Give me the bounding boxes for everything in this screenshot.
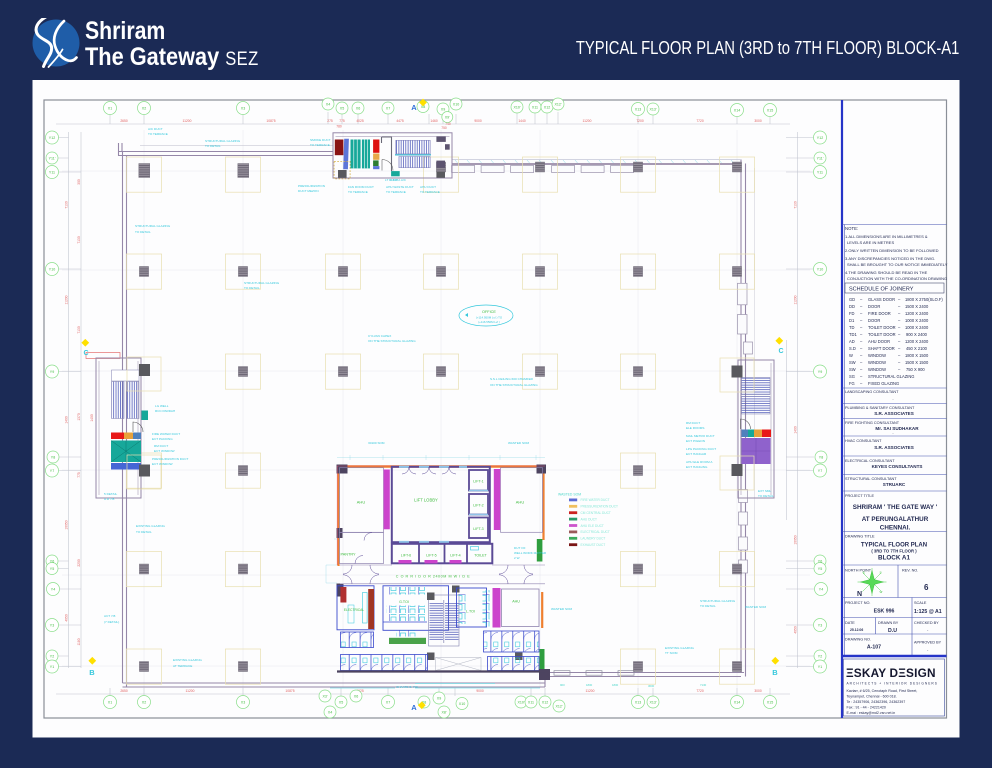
- svg-text:TOILET DOOR: TOILET DOOR: [868, 325, 896, 330]
- svg-text:SHALL BE BROUGHT TO OUR NOTICE: SHALL BE BROUGHT TO OUR NOTICE IMMEDIATE…: [847, 262, 948, 267]
- svg-text:Y2: Y2: [50, 655, 54, 659]
- svg-text:LT DUCT: LT DUCT: [385, 178, 398, 182]
- svg-text:TD: TD: [849, 325, 855, 330]
- svg-text:TT SO/M: TT SO/M: [665, 651, 678, 655]
- svg-text:S.D: S.D: [849, 346, 856, 351]
- svg-text:Y7: Y7: [818, 469, 822, 473]
- svg-text:S.R. ASSOCIATES: S.R. ASSOCIATES: [874, 411, 914, 416]
- svg-text:X7: X7: [386, 107, 390, 111]
- svg-text:E-mai : eskay@md2.vsn.net.in: E-mai : eskay@md2.vsn.net.in: [847, 711, 896, 715]
- svg-text:WASTED SOM: WASTED SOM: [551, 607, 572, 611]
- svg-text:S: S: [880, 571, 882, 575]
- svg-text:ECT WINDOW: ECT WINDOW: [154, 449, 175, 453]
- svg-text:4050: 4050: [65, 614, 69, 622]
- svg-text:Kaviarr, # 6/25, Cenotaph Road: Kaviarr, # 6/25, Cenotaph Road, First St…: [847, 689, 918, 693]
- svg-text:DRAWING NO.: DRAWING NO.: [845, 638, 871, 642]
- svg-text:Y3: Y3: [50, 624, 54, 628]
- svg-text:Y1: Y1: [50, 665, 54, 669]
- svg-text:SW: SW: [849, 360, 856, 365]
- svg-text:AHU ELE ROOM A: AHU ELE ROOM A: [686, 460, 713, 464]
- svg-text:FIRE WATER DUCT: FIRE WATER DUCT: [152, 432, 180, 436]
- svg-text:DOOR: DOOR: [868, 318, 880, 323]
- svg-text:S.R. ASSOCIATES: S.R. ASSOCIATES: [874, 445, 914, 450]
- svg-text:LIFT-3: LIFT-3: [473, 527, 483, 531]
- svg-text:AT PERUNGALATHUR: AT PERUNGALATHUR: [862, 516, 929, 523]
- svg-text:STRUCTURAL CONSULTANT: STRUCTURAL CONSULTANT: [845, 477, 897, 481]
- svg-text:N: N: [857, 591, 862, 598]
- svg-text:WINDOW: WINDOW: [868, 360, 886, 365]
- svg-text:2650: 2650: [120, 689, 128, 693]
- svg-text:A-107: A-107: [867, 645, 881, 651]
- svg-text:DUCT MEZON: DUCT MEZON: [298, 189, 319, 193]
- svg-text:STRUCTURAL GLAZING: STRUCTURAL GLAZING: [135, 224, 171, 228]
- svg-text:DD: DD: [849, 304, 855, 309]
- svg-text:1800 X 2750(SLO.F): 1800 X 2750(SLO.F): [905, 297, 943, 302]
- svg-text:PRESSURIZATION DUCT: PRESSURIZATION DUCT: [581, 505, 619, 509]
- svg-text:RCC PARDAH: RCC PARDAH: [155, 409, 175, 413]
- svg-text:Fax : 91 - 44 - 24221420: Fax : 91 - 44 - 24221420: [847, 706, 886, 710]
- svg-text:ΞSKAY DΞSIGN: ΞSKAY DΞSIGN: [846, 666, 936, 680]
- svg-text:PLUMBING & SANITARY CONSULT: PLUMBING & SANITARY CONSULTANT: [845, 406, 915, 410]
- svg-text:11200: 11200: [583, 119, 592, 123]
- svg-text:1400: 1400: [794, 426, 798, 434]
- svg-text:Y11': Y11': [49, 157, 56, 161]
- svg-text:PROJECT TITLE: PROJECT TITLE: [845, 494, 874, 498]
- svg-text:DUT OF: DUT OF: [514, 546, 526, 550]
- svg-text:TO TERRACE: TO TERRACE: [386, 190, 406, 194]
- svg-text:TO DETAIL: TO DETAIL: [136, 530, 152, 534]
- svg-text:AD: AD: [849, 339, 855, 344]
- svg-text:Y9: Y9: [818, 370, 822, 374]
- svg-text:DOOR: DOOR: [868, 304, 880, 309]
- svg-text:C: C: [83, 350, 88, 357]
- svg-text:CHENNAI.: CHENNAI.: [880, 525, 911, 532]
- svg-text:DRAWN BY: DRAWN BY: [878, 621, 899, 625]
- svg-text:AHU: AHU: [516, 500, 525, 505]
- svg-text:ELECTRICAL CONSULTANT: ELECTRICAL CONSULTANT: [845, 459, 895, 463]
- svg-text:5 DETAIL: 5 DETAIL: [104, 492, 117, 496]
- svg-text:X3': X3': [322, 695, 327, 699]
- svg-text:Y12: Y12: [49, 136, 55, 140]
- svg-text:X12: X12: [544, 106, 550, 110]
- svg-text:RM DUCT: RM DUCT: [154, 444, 168, 448]
- svg-text:AHU DOOR: AHU DOOR: [868, 339, 890, 344]
- svg-text:Y8: Y8: [819, 456, 823, 460]
- svg-text:DATE: DATE: [845, 621, 855, 625]
- svg-text:Y11': Y11': [817, 157, 824, 161]
- svg-text:APPROVED BY: APPROVED BY: [914, 641, 942, 645]
- svg-text:B: B: [89, 668, 95, 677]
- svg-text:3000: 3000: [754, 689, 762, 693]
- svg-text:3000: 3000: [648, 684, 655, 688]
- svg-text:FIXED GLAZING: FIXED GLAZING: [868, 381, 899, 386]
- svg-text:SHAFT DOOR: SHAFT DOOR: [868, 346, 895, 351]
- svg-text:OFFICE: OFFICE: [482, 310, 496, 314]
- svg-text:S.S.L CEILING 600 CHAMFER: S.S.L CEILING 600 CHAMFER: [490, 377, 534, 381]
- svg-text:TO TERRACE: TO TERRACE: [310, 143, 330, 147]
- svg-text:WASTED SOM: WASTED SOM: [508, 441, 529, 445]
- svg-text:ON THE STRUCTURAL GLAZING: ON THE STRUCTURAL GLAZING: [490, 383, 538, 387]
- svg-text:Y2: Y2: [818, 655, 822, 659]
- svg-text:C: C: [778, 348, 783, 355]
- svg-text:AHU: AHU: [512, 600, 520, 604]
- svg-text:Y5: Y5: [818, 567, 822, 571]
- svg-text:TO DETAIL: TO DETAIL: [758, 494, 774, 498]
- svg-text:300: 300: [77, 179, 81, 185]
- svg-text:LIFT LOBBY: LIFT LOBBY: [414, 498, 438, 503]
- svg-text:PRESSURIZATION: PRESSURIZATION: [298, 184, 325, 188]
- svg-text:NOTE:: NOTE:: [845, 226, 858, 231]
- svg-text:LIFT-2: LIFT-2: [473, 504, 483, 508]
- svg-text:NORTH POINT: NORTH POINT: [845, 569, 872, 573]
- svg-text:X10': X10': [513, 106, 520, 110]
- svg-text:ELECTRICAL DUCT: ELECTRICAL DUCT: [581, 530, 610, 534]
- svg-text:TO DETAIL: TO DETAIL: [205, 144, 221, 148]
- svg-text:4025: 4025: [356, 119, 364, 123]
- svg-text:L.TOI: L.TOI: [466, 610, 475, 614]
- svg-text:TOILET DOOR: TOILET DOOR: [868, 332, 896, 337]
- svg-text:EXISTING GLAZING: EXISTING GLAZING: [665, 646, 694, 650]
- svg-text:2 W: 2 W: [514, 556, 520, 560]
- svg-text:Mr. SAI SUDHAKAR: Mr. SAI SUDHAKAR: [875, 426, 919, 431]
- svg-text:DRAWING TITLE: DRAWING TITLE: [845, 535, 875, 539]
- svg-text:ELE ROOMS: ELE ROOMS: [686, 426, 704, 430]
- svg-text:11200: 11200: [794, 295, 798, 304]
- svg-text:AHU WASTE DUCT: AHU WASTE DUCT: [386, 185, 414, 189]
- svg-text:LANDSCAPING CONSULTANT: LANDSCAPING CONSULTANT: [845, 390, 899, 394]
- svg-text:30100 SOM: 30100 SOM: [368, 441, 385, 445]
- svg-text:TO TERRACE: TO TERRACE: [148, 132, 168, 136]
- svg-text:X14: X14: [734, 109, 740, 113]
- svg-text:W: W: [849, 353, 853, 358]
- svg-text:A/C DUCT: A/C DUCT: [148, 127, 163, 131]
- svg-text:WINDOW: WINDOW: [868, 367, 886, 372]
- svg-text:LIFT-4: LIFT-4: [450, 554, 460, 558]
- svg-text:REV. NO.: REV. NO.: [902, 569, 918, 573]
- svg-text:11200: 11200: [65, 295, 69, 304]
- svg-text:X1: X1: [108, 107, 112, 111]
- svg-text:7130: 7130: [700, 683, 707, 687]
- svg-text:X6: X6: [354, 695, 358, 699]
- svg-text:ECT WINDOW: ECT WINDOW: [152, 462, 173, 466]
- svg-text:FAN ROOM DUCT: FAN ROOM DUCT: [348, 185, 374, 189]
- svg-text:Teynampet, Chennai - 600 018.: Teynampet, Chennai - 600 018.: [847, 695, 897, 699]
- svg-text:A.R 7/8: A.R 7/8: [104, 497, 115, 501]
- svg-text:X2: X2: [142, 107, 146, 111]
- svg-text:775: 775: [77, 472, 81, 478]
- svg-text:ECT HANGAR: ECT HANGAR: [686, 452, 707, 456]
- svg-text:LPG PACKING DUCT: LPG PACKING DUCT: [686, 447, 716, 451]
- svg-text:X15: X15: [767, 701, 773, 705]
- svg-text:TOILET: TOILET: [474, 554, 487, 558]
- svg-text:1200 X 2400: 1200 X 2400: [905, 339, 929, 344]
- svg-text:WASTED SOM: WASTED SOM: [558, 493, 581, 497]
- svg-text:750: 750: [441, 126, 447, 130]
- svg-text:A: A: [411, 103, 417, 112]
- svg-text:FG: FG: [849, 381, 855, 386]
- svg-text:LIFT-6: LIFT-6: [401, 554, 411, 558]
- svg-text:SCALE: SCALE: [914, 601, 927, 605]
- svg-text:FIRE WATER DUCT: FIRE WATER DUCT: [581, 498, 610, 502]
- svg-text:Y10: Y10: [817, 268, 823, 272]
- svg-text:WASTED SOM: WASTED SOM: [745, 605, 766, 609]
- svg-text:10050: 10050: [794, 535, 798, 544]
- svg-text:1000 X 2400: 1000 X 2400: [905, 325, 929, 330]
- svg-text:7130: 7130: [794, 201, 798, 209]
- svg-text:900: 900: [560, 683, 565, 687]
- svg-text:SG: SG: [849, 374, 855, 379]
- svg-text:780: 780: [336, 125, 342, 129]
- svg-text:CYLVAN CAPEX: CYLVAN CAPEX: [368, 334, 391, 338]
- svg-text:1800: 1800: [586, 683, 593, 687]
- svg-text:FD: FD: [849, 311, 855, 316]
- svg-text:10875: 10875: [285, 689, 294, 693]
- svg-text:X13: X13: [635, 108, 641, 112]
- svg-text:X5: X5: [339, 701, 343, 705]
- svg-text:GD: GD: [849, 297, 855, 302]
- svg-text:Y7: Y7: [50, 469, 54, 473]
- svg-text:Y9: Y9: [50, 370, 54, 374]
- svg-text:1200 X 2400: 1200 X 2400: [905, 311, 929, 316]
- svg-text:9000: 9000: [476, 689, 484, 693]
- svg-text:1370: 1370: [77, 413, 81, 421]
- svg-text:1400: 1400: [65, 416, 69, 424]
- svg-text:LIFT-5: LIFT-5: [426, 554, 436, 558]
- svg-text:X11: X11: [528, 701, 534, 705]
- svg-text:GHAATE B. FSI: GHAATE B. FSI: [396, 685, 418, 689]
- svg-text:25.12.06: 25.12.06: [850, 628, 863, 632]
- svg-text:X3: X3: [241, 701, 245, 705]
- svg-text:6: 6: [924, 583, 929, 592]
- svg-text:1440: 1440: [518, 119, 526, 123]
- svg-text:4.THE DRAWING SHOULD BE READ I: 4.THE DRAWING SHOULD BE READ IN THE: [845, 270, 928, 275]
- svg-text:FIRE DOOR: FIRE DOOR: [868, 311, 891, 316]
- svg-text:W: W: [880, 590, 883, 594]
- svg-text:1000 X 2400: 1000 X 2400: [905, 318, 929, 323]
- svg-text:MAIL METRO DUCT: MAIL METRO DUCT: [686, 434, 715, 438]
- svg-text:SCHEDULE OF JOINERY: SCHEDULE OF JOINERY: [849, 287, 914, 293]
- svg-text:TO DETAIL: TO DETAIL: [135, 230, 151, 234]
- svg-text:HVAC CONSULTANT: HVAC CONSULTANT: [845, 439, 882, 443]
- svg-text:X13: X13: [635, 701, 641, 705]
- svg-text:X10: X10: [459, 702, 465, 706]
- svg-text:(7 DETAIL): (7 DETAIL): [104, 620, 119, 624]
- svg-text:X12: X12: [542, 701, 548, 705]
- svg-text:2200: 2200: [77, 559, 81, 567]
- svg-text:PANTRY: PANTRY: [340, 553, 356, 557]
- svg-text:X5: X5: [340, 107, 344, 111]
- svg-text:7130: 7130: [77, 236, 81, 244]
- svg-text:7720: 7720: [696, 119, 704, 123]
- svg-text:450 X 2100: 450 X 2100: [906, 346, 928, 351]
- svg-text:LAUNDRY DUCT: LAUNDRY DUCT: [581, 537, 606, 541]
- svg-text:X2: X2: [142, 701, 146, 705]
- svg-text:D1: D1: [849, 318, 855, 323]
- svg-text:AHU ELE DUCT: AHU ELE DUCT: [581, 524, 604, 528]
- svg-text:Y4: Y4: [51, 588, 55, 592]
- svg-text:CM CENTRAL DUCT: CM CENTRAL DUCT: [581, 511, 611, 515]
- svg-text:X15: X15: [767, 109, 773, 113]
- svg-text:Y4: Y4: [819, 588, 823, 592]
- svg-text:RM DUCT: RM DUCT: [686, 421, 700, 425]
- svg-text:E: E: [863, 571, 865, 575]
- svg-text:X12': X12': [554, 103, 561, 107]
- svg-text:3.ANY DISCREPANCIES NOTICED IN: 3.ANY DISCREPANCIES NOTICED IN THE DWG.: [845, 256, 935, 261]
- svg-text:WINDOW: WINDOW: [868, 353, 886, 358]
- svg-text:1800 X 1500: 1800 X 1500: [905, 353, 929, 358]
- svg-text:1460: 1460: [430, 119, 438, 123]
- svg-text:STRUCTURAL GLAZING: STRUCTURAL GLAZING: [244, 281, 280, 285]
- svg-text:LG WELL: LG WELL: [155, 404, 169, 408]
- svg-text:X4: X4: [328, 711, 332, 715]
- svg-text:LIFT-1: LIFT-1: [473, 480, 483, 484]
- svg-text:1400: 1400: [90, 414, 94, 422]
- svg-text:PROJECT NO.: PROJECT NO.: [845, 601, 870, 605]
- svg-text:ECT HANGING: ECT HANGING: [686, 465, 708, 469]
- svg-text:1:125 @ A1: 1:125 @ A1: [914, 609, 942, 615]
- svg-text:Y5: Y5: [50, 567, 54, 571]
- svg-text:X7: X7: [386, 701, 390, 705]
- svg-text:FIRE FIGHTING CONSULTANT: FIRE FIGHTING CONSULTANT: [845, 421, 900, 425]
- svg-text:X3: X3: [241, 107, 245, 111]
- svg-text:X14: X14: [734, 701, 740, 705]
- svg-text:ELECTRICAL: ELECTRICAL: [344, 608, 365, 612]
- svg-text:X11: X11: [532, 106, 538, 110]
- svg-text:2650: 2650: [120, 119, 128, 123]
- svg-text:TO DETAIL: TO DETAIL: [700, 604, 716, 608]
- svg-text:X13': X13': [649, 108, 656, 112]
- svg-text:TO TERRACE: TO TERRACE: [348, 190, 368, 194]
- svg-text:11200: 11200: [183, 119, 192, 123]
- svg-text:(+116.550M Lvl ): (+116.550M Lvl ): [478, 320, 500, 324]
- svg-text:A: A: [411, 703, 417, 712]
- svg-text:ESK 996: ESK 996: [874, 609, 895, 615]
- svg-text:PRESSURIZATION DUCT: PRESSURIZATION DUCT: [152, 457, 188, 461]
- svg-text:EXT SML: EXT SML: [758, 489, 771, 493]
- svg-text:775: 775: [339, 119, 345, 123]
- svg-text:ON THE STRUCTURAL GLAZING: ON THE STRUCTURAL GLAZING: [368, 339, 416, 343]
- svg-text:Y8: Y8: [51, 456, 55, 460]
- svg-text:7130: 7130: [65, 201, 69, 209]
- svg-text:11200: 11200: [186, 689, 195, 693]
- svg-text:D.U: D.U: [888, 628, 897, 634]
- svg-text:LEVELS ARE IN METRES: LEVELS ARE IN METRES: [847, 240, 894, 245]
- svg-text:TD1: TD1: [849, 332, 857, 337]
- svg-text:CONJUCTION WITH THE CO-ORDINAT: CONJUCTION WITH THE CO-ORDINATION DRAWIN…: [847, 276, 947, 281]
- svg-text:Y6: Y6: [50, 560, 54, 564]
- svg-text:ECT PACKING: ECT PACKING: [152, 437, 173, 441]
- svg-text:X1: X1: [108, 701, 112, 705]
- svg-text:BLOCK A1: BLOCK A1: [878, 555, 910, 562]
- svg-text:Y11: Y11: [817, 171, 823, 175]
- svg-text:X12': X12': [555, 705, 562, 709]
- svg-text:EXISTING GLAZING: EXISTING GLAZING: [173, 658, 202, 662]
- svg-text:STRUCTURAL GLAZING: STRUCTURAL GLAZING: [700, 599, 736, 603]
- svg-text:10050: 10050: [65, 520, 69, 529]
- svg-text:X10: X10: [453, 103, 459, 107]
- svg-text:X8': X8': [441, 711, 446, 715]
- svg-text:TO DETAIL: TO DETAIL: [244, 286, 260, 290]
- svg-text:4050: 4050: [794, 626, 798, 634]
- svg-text:STRUARC: STRUARC: [883, 482, 906, 487]
- svg-text:Te : 24357906, 24362396, 243: Te : 24357906, 24362396, 24362397: [847, 700, 906, 704]
- svg-text:STRUCTURAL GLAZING: STRUCTURAL GLAZING: [205, 139, 241, 143]
- svg-text:SW: SW: [849, 367, 856, 372]
- svg-text:AT TERRACE: AT TERRACE: [173, 664, 192, 668]
- svg-text:X4: X4: [326, 103, 330, 107]
- svg-text:X9: X9: [441, 108, 445, 112]
- svg-text:B: B: [772, 668, 778, 677]
- svg-text:( 3RD TO 7TH FLOOR ): ( 3RD TO 7TH FLOOR ): [871, 549, 917, 554]
- svg-text:X9: X9: [437, 697, 441, 701]
- svg-text:C O R R I D O R 2400M M W I: C O R R I D O R 2400M M W I D E: [396, 575, 470, 579]
- svg-text:(+114.950M Lvl ) TO: (+114.950M Lvl ) TO: [476, 316, 503, 320]
- svg-text:AHU: AHU: [357, 500, 366, 505]
- svg-text:1500 X 1500: 1500 X 1500: [905, 360, 929, 365]
- svg-text:KEYES CONSULTANTS: KEYES CONSULTANTS: [872, 464, 923, 469]
- svg-text:900 X 2400: 900 X 2400: [906, 332, 928, 337]
- svg-text:1800: 1800: [612, 683, 619, 687]
- svg-text:1500 X 2400: 1500 X 2400: [905, 304, 929, 309]
- svg-text:2.ONLY WRITTEN DIMENSION TO BE: 2.ONLY WRITTEN DIMENSION TO BE FOLLOWED: [845, 248, 939, 253]
- svg-text:Y6: Y6: [818, 560, 822, 564]
- svg-text:ARCHITECTS + INTERIOR DESIGN: ARCHITECTS + INTERIOR DESIGNERS: [847, 682, 938, 686]
- svg-text:CHECKED BY: CHECKED BY: [914, 621, 939, 625]
- svg-text:4475: 4475: [396, 119, 404, 123]
- svg-text:1180: 1180: [77, 638, 81, 645]
- svg-text:X10': X10': [517, 701, 524, 705]
- svg-text:G.TOI: G.TOI: [399, 600, 409, 604]
- svg-text:EXHAUST DUCT: EXHAUST DUCT: [581, 543, 606, 547]
- svg-text:Y1: Y1: [818, 665, 822, 669]
- svg-text:Y12: Y12: [817, 136, 823, 140]
- svg-text:WELL WORK MATTER: WELL WORK MATTER: [514, 551, 547, 555]
- svg-text:Y11: Y11: [49, 171, 55, 175]
- svg-text:1.ALL DIMENSIONS ARE IN MILLIM: 1.ALL DIMENSIONS ARE IN MILLIMETRES &: [845, 234, 928, 239]
- svg-text:TO TERRACE: TO TERRACE: [420, 190, 440, 194]
- svg-text:X13': X13': [649, 701, 656, 705]
- svg-text:SHRIRAM ' THE GATE WAY ': SHRIRAM ' THE GATE WAY ': [853, 504, 938, 511]
- svg-text:GLASS DOOR: GLASS DOOR: [868, 297, 895, 302]
- svg-text:750 X 900: 750 X 900: [906, 367, 925, 372]
- svg-text:EXISTING GLAZING: EXISTING GLAZING: [136, 524, 165, 528]
- svg-text:7720: 7720: [696, 689, 704, 693]
- svg-text:Y10: Y10: [49, 268, 55, 272]
- svg-text:7200: 7200: [636, 119, 644, 123]
- svg-text:ECT PIGEON: ECT PIGEON: [686, 439, 705, 443]
- svg-text:Y3: Y3: [818, 624, 822, 628]
- svg-text:SMOKE DUCT: SMOKE DUCT: [310, 138, 331, 142]
- svg-text:3000: 3000: [754, 119, 762, 123]
- svg-text:10875: 10875: [266, 119, 275, 123]
- svg-text:AHU DUCT: AHU DUCT: [581, 517, 598, 521]
- svg-text:STRUCTURAL GLAZING: STRUCTURAL GLAZING: [868, 374, 914, 379]
- svg-text:ACT 7/8: ACT 7/8: [104, 614, 116, 618]
- svg-text:9000: 9000: [474, 119, 482, 123]
- svg-text:X9': X9': [445, 115, 450, 119]
- svg-text:275: 275: [327, 119, 333, 123]
- svg-text:AHU DUCT: AHU DUCT: [420, 185, 436, 189]
- svg-text:11200: 11200: [586, 689, 595, 693]
- svg-text:7130: 7130: [77, 326, 81, 334]
- svg-text:X6: X6: [356, 107, 360, 111]
